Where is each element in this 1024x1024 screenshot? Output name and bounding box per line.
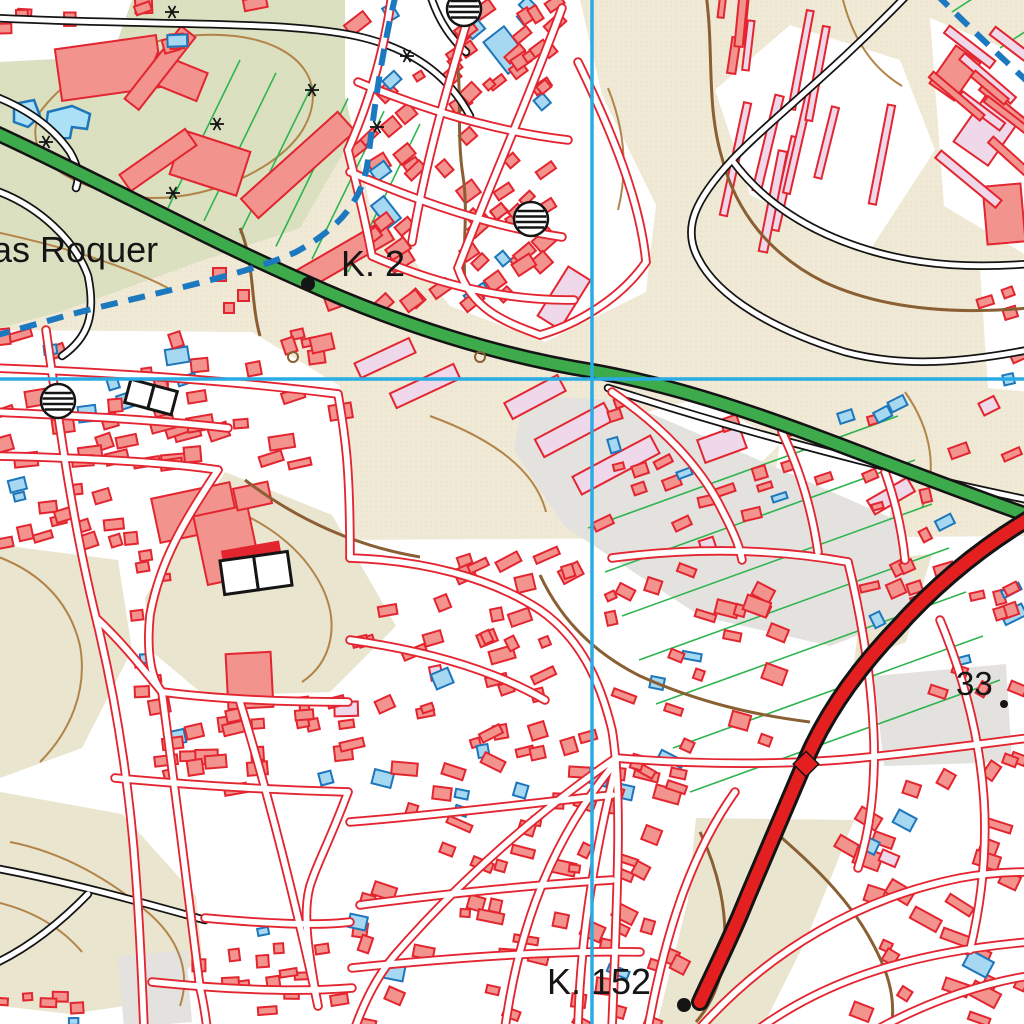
label-km-marker-green-road: K. 2	[341, 243, 405, 284]
kilometre-dot	[301, 277, 315, 291]
spot-height-dot	[1000, 700, 1008, 708]
water-tank-icon	[514, 202, 548, 236]
map-viewport[interactable]: as Roquer K. 2 K. 152 33	[0, 0, 1024, 1024]
label-place-name: as Roquer	[0, 229, 158, 270]
label-spot-height: 33	[956, 665, 993, 702]
label-km-marker-red-road: K. 152	[547, 961, 651, 1002]
water-tank-icon	[447, 0, 481, 26]
water-tank-icon	[41, 384, 75, 418]
kilometre-dot	[677, 998, 691, 1012]
map-canvas[interactable]: as Roquer K. 2 K. 152 33	[0, 0, 1024, 1024]
building-outline-icon	[220, 551, 292, 594]
